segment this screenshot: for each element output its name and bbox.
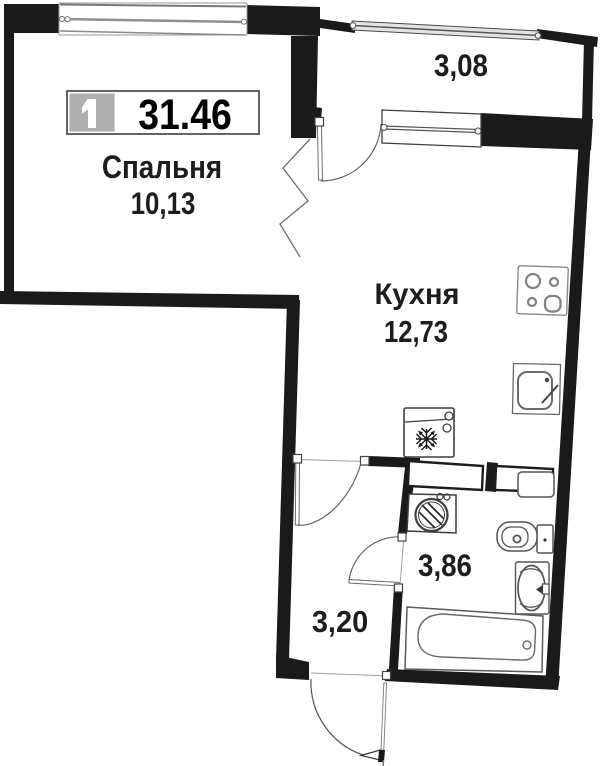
svg-text:10,13: 10,13 [131, 187, 196, 222]
svg-text:3,08: 3,08 [434, 48, 488, 83]
svg-text:31.46: 31.46 [138, 92, 232, 139]
svg-text:12,73: 12,73 [384, 315, 448, 349]
svg-text:Спальня: Спальня [102, 150, 222, 185]
svg-text:Кухня: Кухня [374, 278, 459, 311]
svg-text:3,86: 3,86 [418, 548, 472, 583]
svg-text:3,20: 3,20 [312, 605, 368, 639]
